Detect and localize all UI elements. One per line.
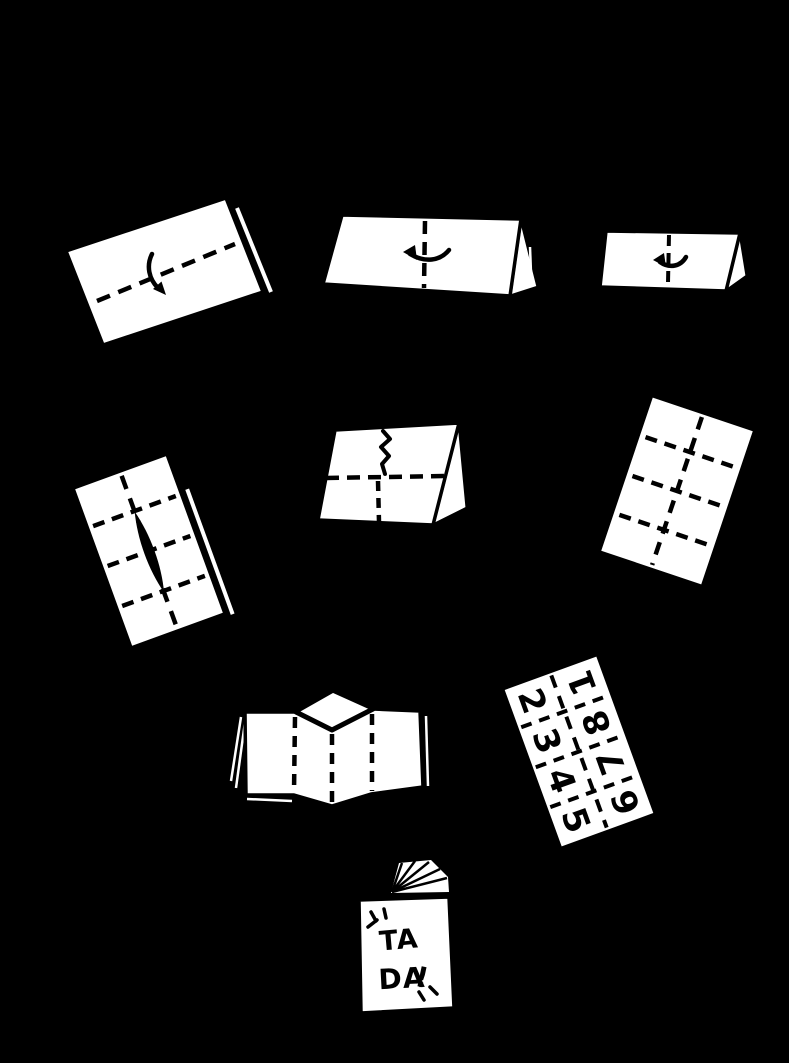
back-page-edge <box>247 799 292 801</box>
step9-finished-booklet: TA DA ! <box>359 860 454 1013</box>
back-page-edge <box>426 716 428 786</box>
back-edge-accent <box>624 224 650 226</box>
fold-line-dashed <box>668 235 669 283</box>
step7-push-together <box>231 691 428 806</box>
cover-word-ta: TA <box>378 923 420 957</box>
fold-line-dashed <box>378 481 379 522</box>
paper-cross-shape <box>245 691 423 806</box>
step5-fold-and-cut <box>318 423 467 525</box>
step6-sheet-with-slit <box>73 452 233 651</box>
instructions-canvas: 2 3 4 5 1 8 7 6 TA DA ! <box>0 0 789 1063</box>
step1-fold-sheet-down <box>66 198 271 345</box>
zine-folding-instructions: 2 3 4 5 1 8 7 6 TA DA ! <box>0 0 789 1063</box>
step2-folded-half <box>323 215 538 296</box>
step4-unfolded-eight-panels <box>599 395 755 586</box>
paper-underlayer-edge <box>530 247 531 273</box>
step3-folded-quarter <box>600 224 747 291</box>
step8-page-number-layout: 2 3 4 5 1 8 7 6 <box>502 654 655 848</box>
paper-sheet <box>323 215 521 296</box>
